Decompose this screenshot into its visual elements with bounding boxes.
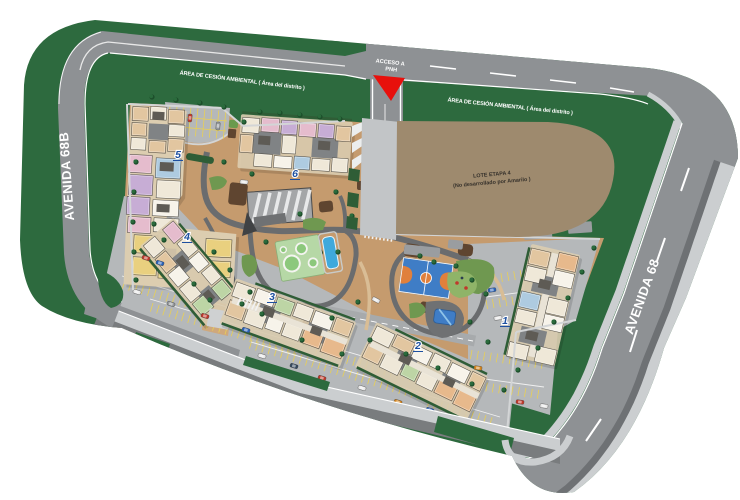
svg-text:4: 4 [183,231,190,243]
svg-text:2: 2 [414,340,421,352]
svg-text:6: 6 [292,168,298,180]
svg-text:1: 1 [502,315,508,327]
svg-text:3: 3 [269,291,275,303]
svg-text:5: 5 [175,149,181,161]
